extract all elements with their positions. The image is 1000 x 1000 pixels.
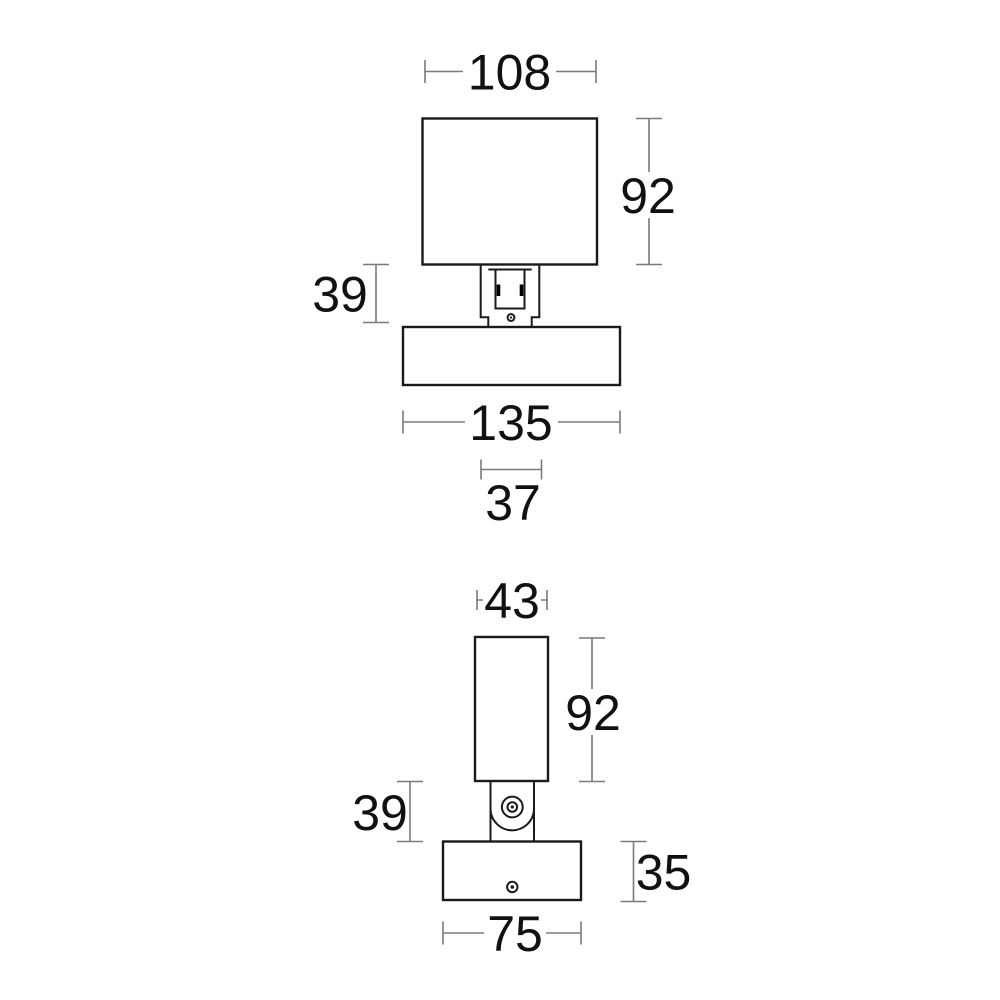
side-fixture-outline [443,637,581,900]
lamp-shade-front [423,119,598,265]
dimension-drawing-svg: 108 92 39 135 37 [0,0,1000,1000]
side-dimension-lines [397,590,647,945]
front-fixture-outline [403,119,620,386]
front-view: 108 92 39 135 37 [312,45,680,532]
label-wallplate-depth: 75 [487,906,543,962]
side-view: 43 92 39 35 75 [352,573,691,962]
label-shade-height: 92 [620,168,676,224]
wall-plate-screw-center [511,885,515,889]
label-shade-width: 108 [468,45,551,101]
wall-plate-front [403,327,620,385]
hinge-pivot-center [511,805,514,808]
label-bracket-width: 37 [485,475,541,531]
lamp-body-side [475,637,548,781]
label-body-height: 92 [565,685,621,741]
bracket-left-arm [481,265,489,328]
label-body-width: 43 [484,573,540,629]
label-wallplate-width: 135 [469,395,552,451]
bracket-screw-center [510,316,512,318]
bracket-right-arm [532,265,540,328]
label-hinge-height: 39 [352,785,408,841]
label-bracket-height: 39 [312,267,368,323]
label-wallplate-height: 35 [636,845,692,901]
hinge-round-bottom [491,810,535,830]
technical-drawing-page: 108 92 39 135 37 [0,0,1000,1000]
